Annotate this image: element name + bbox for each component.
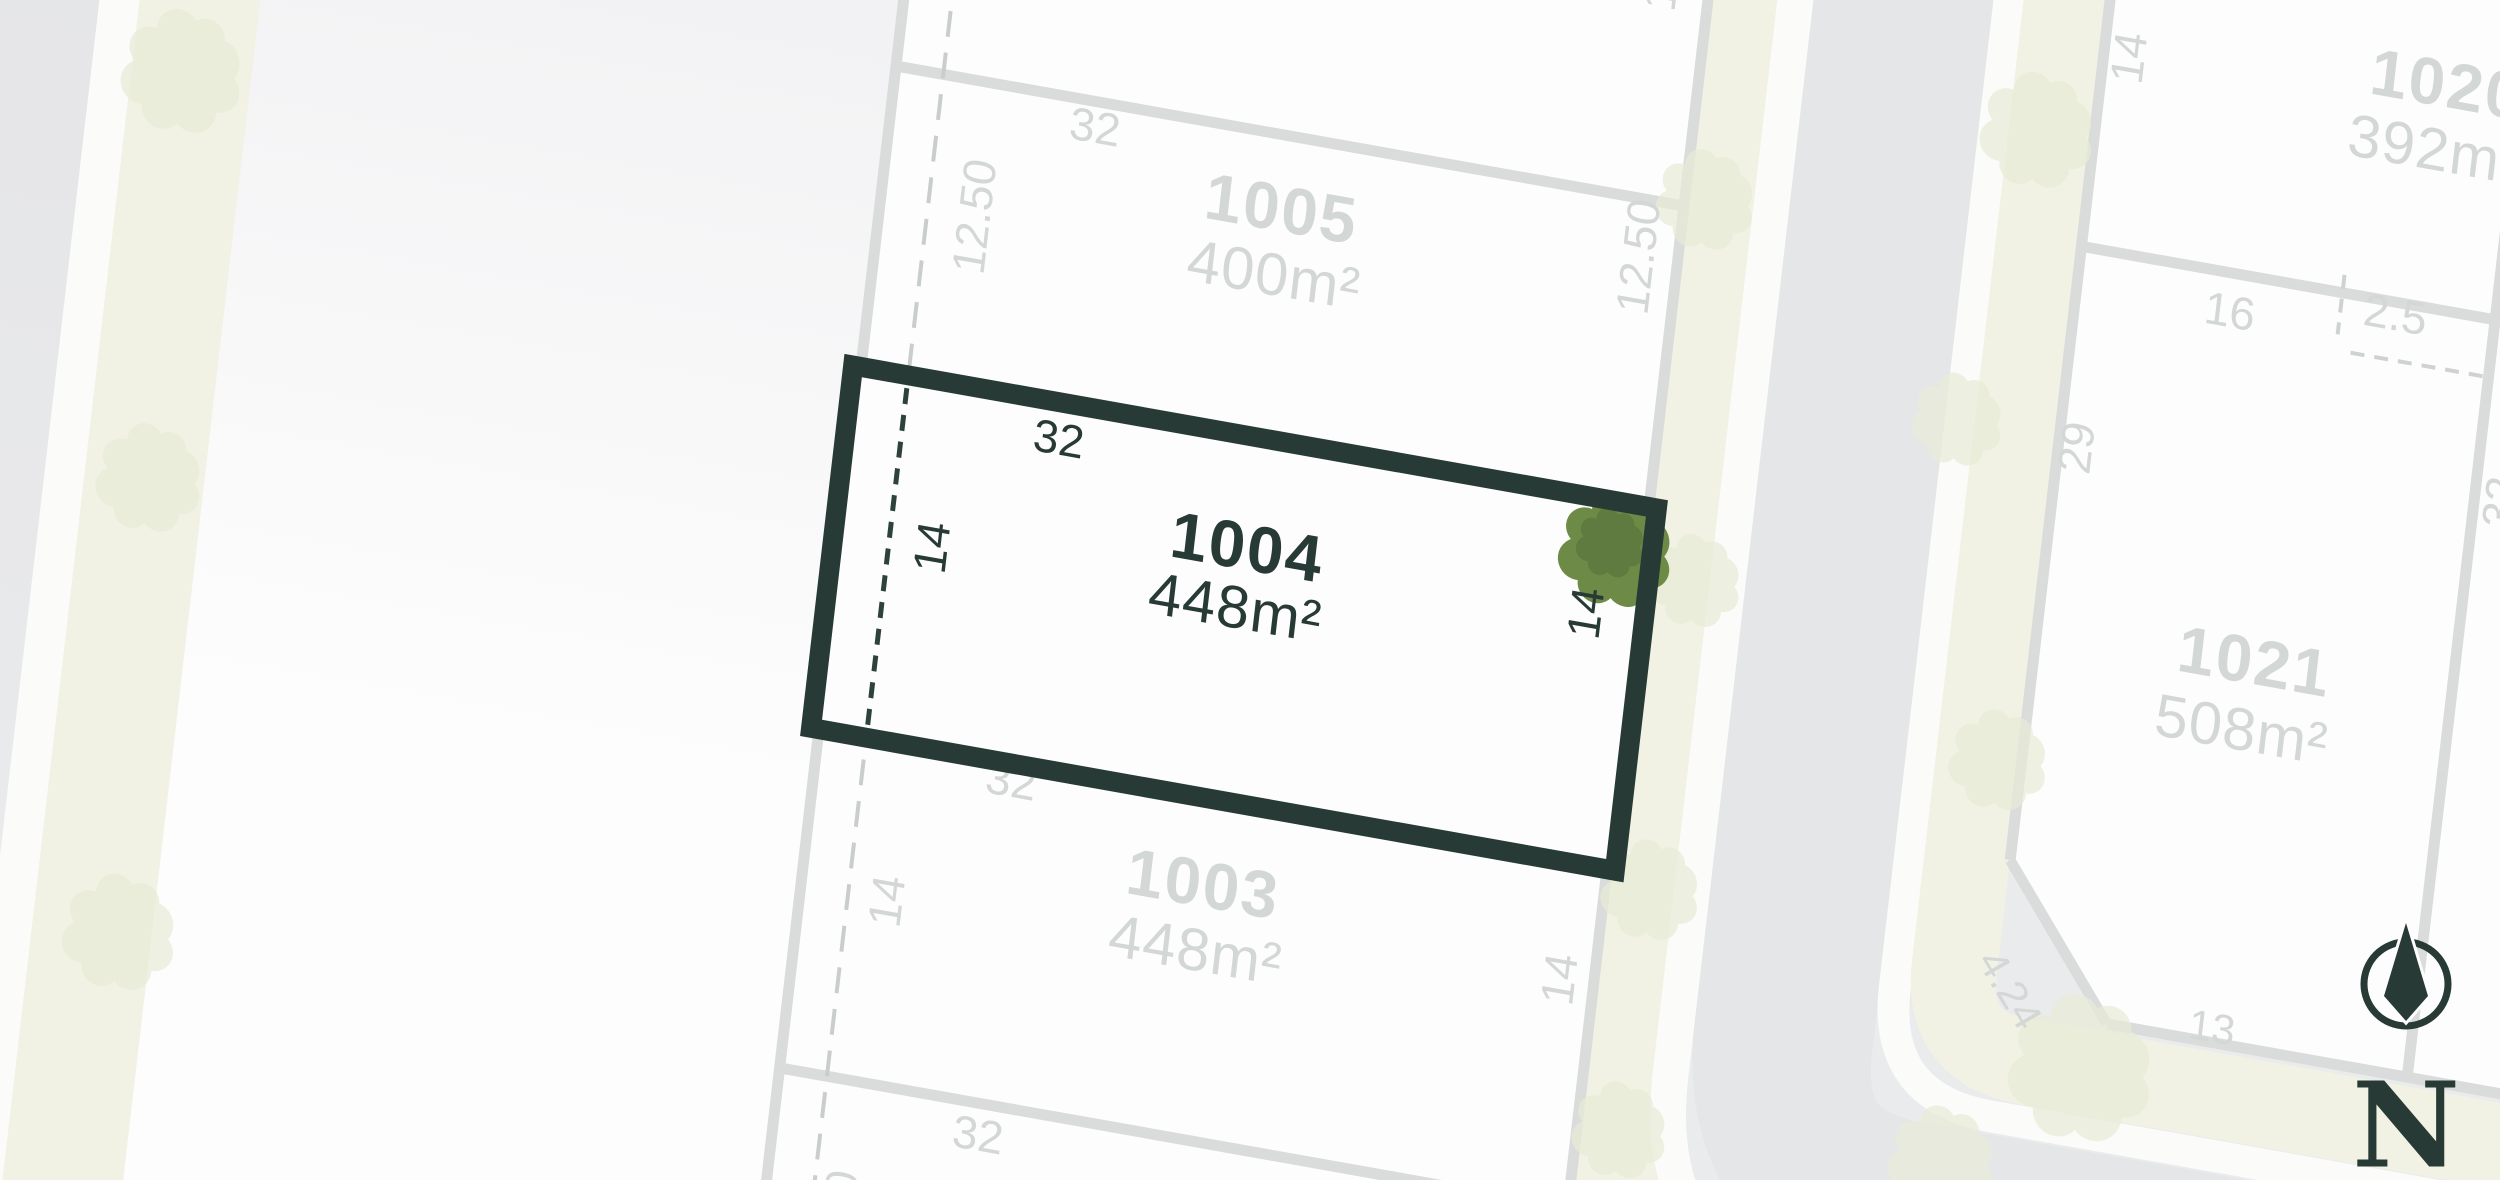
site-plan-stage: 14 32 12.50 12.50 1005 400m² 32 14 1003 … — [0, 0, 2500, 1180]
north-label: N — [2352, 1056, 2460, 1180]
site-plan-map: 14 32 12.50 12.50 1005 400m² 32 14 1003 … — [0, 0, 2500, 1180]
dim-label: 14 — [858, 871, 915, 931]
north-compass: N — [2322, 895, 2500, 1180]
dim-label: 14 — [1530, 949, 1587, 1009]
dim-label: 32 — [950, 1104, 1006, 1165]
dim-label-selected: 14 — [1557, 583, 1614, 643]
dim-label: 13 — [2186, 1000, 2237, 1055]
compass-needle-icon — [2384, 923, 2428, 1021]
dim-label: 32 — [1067, 96, 1123, 157]
dim-label: 32 — [2471, 473, 2500, 533]
dim-label: 2.5 — [2361, 283, 2430, 346]
dim-label: 14 — [2100, 28, 2157, 88]
dim-label: 16 — [2202, 281, 2258, 342]
dim-label: 29 — [2048, 418, 2105, 478]
dim-label-selected: 14 — [903, 517, 960, 577]
dim-label-selected: 32 — [1031, 408, 1087, 469]
